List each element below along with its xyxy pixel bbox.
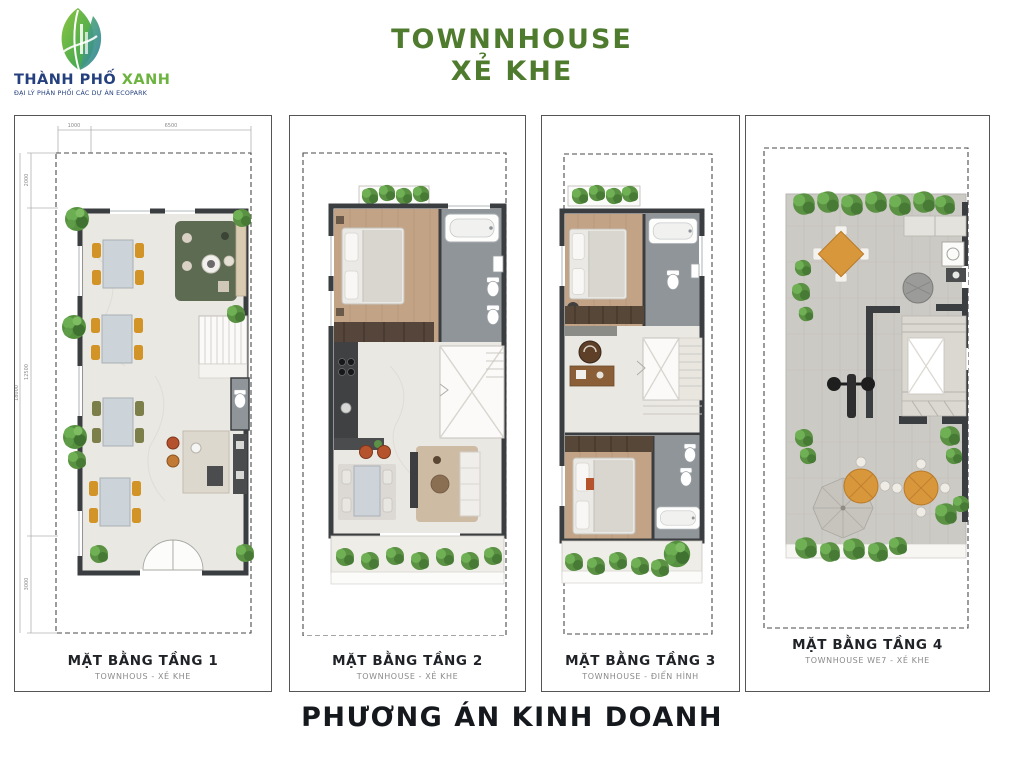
page: THÀNH PHỐ XANH ĐẠI LÝ PHÂN PHỐI CÁC DỰ Á… [0,0,1024,768]
svg-text:1000: 1000 [68,123,81,129]
caption-subtitle: TOWNHOUS - XẺ KHE [15,672,271,681]
bed [573,458,635,534]
wc-room [231,378,249,430]
svg-text:6500: 6500 [165,123,178,129]
bush-icon [795,260,811,276]
page-title: TOWNNHOUSE XẺ KHE [0,24,1024,88]
stool [360,446,373,459]
floor1-plan: 1000 6500 2000 12500 3000 18000 [15,116,273,636]
living-area [410,446,480,522]
bed [569,229,626,299]
page-title-line2: XẺ KHE [0,56,1024,88]
floorplan-panel-1: 1000 6500 2000 12500 3000 18000 [14,115,272,692]
toilet-icon [487,305,500,324]
floorplan-caption-4: MẶT BẰNG TẦNG 4 TOWNHOUSE WE7 - XẺ KHE [746,637,989,665]
floorplan-caption-2: MẶT BẰNG TẦNG 2 TOWNHOUSE - XẺ KHE [290,653,525,681]
stool [167,437,179,449]
bush-icon [236,544,254,562]
front-planter [359,185,429,206]
front-planter [568,185,640,206]
tree-icon [62,315,86,339]
pillow-accent [586,478,594,490]
dining-set [338,464,396,520]
svg-text:3000: 3000 [24,578,30,591]
caption-subtitle: TOWNHOUSE - XẺ KHE [290,672,525,681]
stairs [902,316,966,416]
floor3-plan [542,116,741,636]
caption-title: MẶT BẰNG TẦNG 3 [542,653,739,669]
footer-title: PHƯƠNG ÁN KINH DOANH [0,702,1024,733]
sink [691,264,699,278]
wardrobe [334,322,434,342]
tree-icon [63,425,87,449]
sink [493,256,503,272]
caption-title: MẶT BẰNG TẦNG 4 [746,637,989,653]
bathtub [445,214,499,242]
floorplan-caption-3: MẶT BẰNG TẦNG 3 TOWNHOUSE - ĐIỂN HÌNH [542,653,739,681]
balcony [562,541,702,583]
bush-icon [233,209,251,227]
floor2-plan [290,116,527,636]
nightstand [336,216,344,224]
svg-text:12500: 12500 [24,364,30,380]
bush-icon [799,307,813,321]
toilet-icon [667,270,680,289]
nightstand [336,308,344,316]
wardrobe [565,436,653,452]
svg-text:18000: 18000 [15,385,20,401]
balcony [331,533,504,584]
caption-subtitle: TOWNHOUSE WE7 - XẺ KHE [746,656,989,665]
bathtub [649,218,698,243]
bush-icon [227,305,245,323]
caption-subtitle: TOWNHOUSE - ĐIỂN HÌNH [542,672,739,681]
floorplan-panel-2: MẶT BẰNG TẦNG 2 TOWNHOUSE - XẺ KHE [289,115,526,692]
bush-icon [68,451,86,469]
stool [167,455,179,467]
bathtub [656,507,699,529]
toilet-icon [684,444,696,462]
stool [378,446,391,459]
tree-icon [65,207,89,231]
floor4-plan [746,116,991,636]
page-title-line1: TOWNNHOUSE [0,24,1024,56]
kitchen-island [183,431,247,494]
toilet-icon [680,468,692,486]
caption-title: MẶT BẰNG TẦNG 2 [290,653,525,669]
bush-icon [792,283,810,301]
stairs [199,316,247,378]
bed [342,228,404,304]
caption-title: MẶT BẰNG TẦNG 1 [15,653,271,669]
stairs [440,346,504,438]
toilet-icon [487,277,500,296]
brand-subtitle: ĐẠI LÝ PHÂN PHỐI CÁC DỰ ÁN ECOPARK [14,90,144,97]
svg-text:2000: 2000 [24,174,30,187]
bush-icon [90,545,108,563]
floorplan-panel-4: MẶT BẰNG TẦNG 4 TOWNHOUSE WE7 - XẺ KHE [745,115,990,692]
floorplan-panel-3: MẶT BẰNG TẦNG 3 TOWNHOUSE - ĐIỂN HÌNH [541,115,740,692]
floorplan-caption-1: MẶT BẰNG TẦNG 1 TOWNHOUS - XẺ KHE [15,653,271,681]
